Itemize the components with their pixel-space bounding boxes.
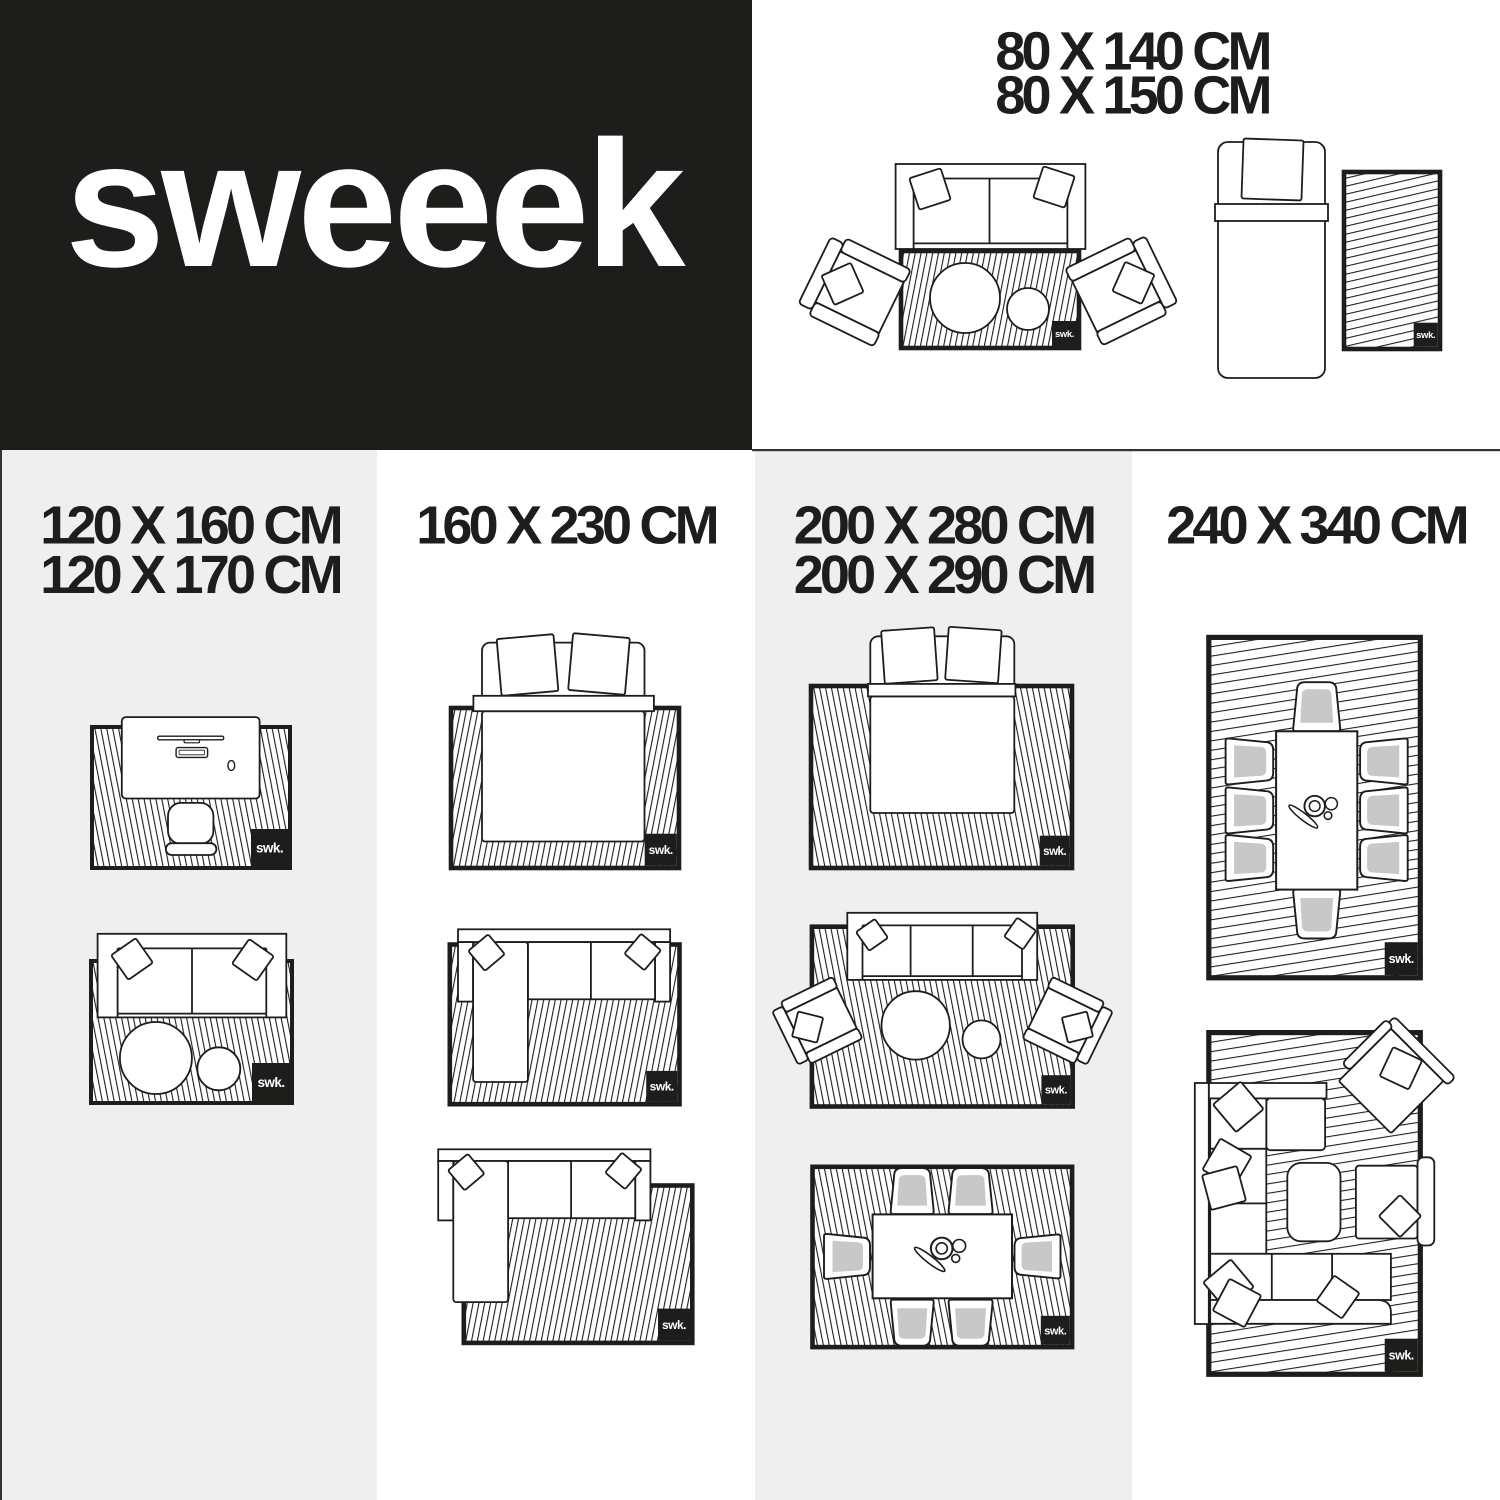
svg-text:swk.: swk.	[662, 1318, 686, 1332]
svg-text:swk.: swk.	[1055, 329, 1074, 340]
svg-text:swk.: swk.	[256, 840, 283, 855]
svg-text:200 X 290 CM: 200 X 290 CM	[794, 545, 1094, 605]
svg-text:swk.: swk.	[1043, 846, 1066, 858]
svg-text:swk.: swk.	[1416, 330, 1435, 341]
svg-text:160 X 230 CM: 160 X 230 CM	[416, 496, 716, 556]
svg-text:swk.: swk.	[257, 1075, 284, 1090]
svg-text:sweeek: sweeek	[65, 104, 686, 305]
svg-text:swk.: swk.	[1044, 1325, 1066, 1337]
svg-text:swk.: swk.	[650, 1080, 674, 1094]
svg-text:swk.: swk.	[1389, 952, 1414, 966]
svg-text:120 X 170 CM: 120 X 170 CM	[40, 545, 340, 605]
svg-text:swk.: swk.	[649, 843, 673, 857]
svg-text:80 X 150 CM: 80 X 150 CM	[995, 65, 1269, 125]
svg-text:swk.: swk.	[1389, 1349, 1414, 1363]
svg-text:swk.: swk.	[1045, 1085, 1067, 1097]
svg-text:240 X 340 CM: 240 X 340 CM	[1166, 496, 1466, 556]
